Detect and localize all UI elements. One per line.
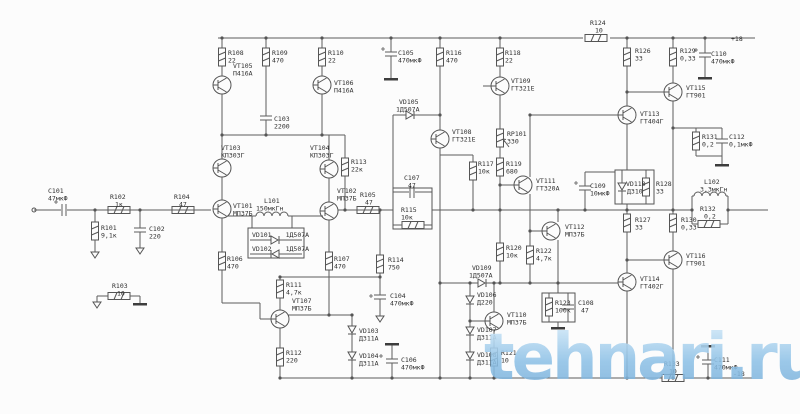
r130-resistor xyxy=(670,214,677,232)
r110-resistor xyxy=(319,48,326,66)
rp101-potentiometer xyxy=(497,129,504,147)
vt114-label: VT114ГТ402Г xyxy=(640,275,664,291)
c109-label: C10910мкФ xyxy=(590,182,610,198)
r115-label: R11510к xyxy=(401,206,417,222)
vt109-transistor xyxy=(491,77,509,95)
r118-resistor xyxy=(497,48,504,66)
r112-label: R112220 xyxy=(286,349,302,365)
vt110-label: VT110МП37Б xyxy=(507,311,527,327)
vt109-label: VT109ГТ321Е xyxy=(511,77,535,93)
vt103-transistor xyxy=(213,159,231,177)
ground-icon xyxy=(91,252,99,258)
vd106-diode xyxy=(466,296,474,304)
vd102-diode xyxy=(271,250,279,258)
r130-label: R1300,33 xyxy=(681,216,697,232)
vd108-diode xyxy=(466,352,474,360)
vt115-transistor xyxy=(664,83,682,101)
r129-label: R1290,33 xyxy=(680,47,696,63)
vt104-transistor xyxy=(320,160,338,178)
c105-label: C105470мкФ xyxy=(398,49,422,65)
vt113-transistor xyxy=(618,106,636,124)
schematic-page: C10147мкФ R1019,1к R1021к C102220 R10310… xyxy=(0,0,800,414)
vt114-transistor xyxy=(618,273,636,291)
r107-label: R107470 xyxy=(334,255,350,271)
r115-resistor xyxy=(402,222,424,229)
ground-icon xyxy=(93,302,101,308)
c107-label: C10747 xyxy=(404,174,420,190)
vt111-label: VT111ГТ320А xyxy=(536,177,560,193)
r113-label: R11322к xyxy=(351,158,367,174)
r120-label: R12010к xyxy=(506,244,522,260)
r110-label: R11022 xyxy=(328,49,344,65)
l101-label: L101150мкГн xyxy=(256,197,283,213)
supply-positive-label: +18 xyxy=(731,35,743,43)
l102-label: L1023,3мкГн xyxy=(700,178,727,194)
chassis-ground-icon xyxy=(133,303,147,306)
r111-label: R1114,7к xyxy=(286,281,302,297)
vt108-transistor xyxy=(431,130,449,148)
vt102-transistor xyxy=(320,202,338,220)
r117-resistor xyxy=(470,162,477,180)
vt113-label: VT113ГТ404Г xyxy=(640,110,664,126)
vt105-label: VT105П416А xyxy=(233,62,253,78)
rp101-label: RP101330 xyxy=(507,130,527,146)
r122-label: R1224,7к xyxy=(536,247,552,263)
r131-resistor xyxy=(693,132,700,150)
ground-icon xyxy=(136,248,144,254)
c112-label: C1120,1мкФ xyxy=(729,133,753,149)
symbols xyxy=(54,35,729,382)
vt101-label: VT101МП37Б xyxy=(233,202,253,218)
ground-icon xyxy=(376,316,384,322)
r101-resistor xyxy=(92,222,99,240)
r114-resistor xyxy=(377,255,384,273)
polarity-plus-icon xyxy=(379,354,383,358)
r108-resistor xyxy=(219,48,226,66)
vt111-transistor xyxy=(514,176,532,194)
vd105-label: VD1051Д507А xyxy=(396,98,420,114)
vd104-diode xyxy=(348,352,356,360)
vt108-label: VT108ГТ321Е xyxy=(452,128,476,144)
vd107-label: VD107Д311А xyxy=(477,326,497,342)
vd107-diode xyxy=(466,327,474,335)
r121-label: R12110 xyxy=(501,349,517,365)
chassis-ground-icon xyxy=(715,164,729,167)
r132-resistor xyxy=(698,221,720,228)
polarity-plus-icon xyxy=(369,294,373,298)
r123-label: R123100к xyxy=(555,299,571,315)
vt106-label: VT106П416А xyxy=(334,79,354,95)
c104-label: C104470мкФ xyxy=(390,292,414,308)
c110-label: C110470мкФ xyxy=(711,50,735,66)
wires xyxy=(32,38,768,378)
chassis-ground-icon xyxy=(551,327,565,330)
chassis-ground-icon xyxy=(701,345,715,348)
r113-resistor xyxy=(342,158,349,176)
vt106-transistor xyxy=(313,76,331,94)
vd109-label: VD1091Д507А xyxy=(469,264,493,280)
vt103-label: VT103КП303Г xyxy=(221,144,245,160)
r103-label: R10310 xyxy=(112,282,128,298)
vt101-transistor xyxy=(213,200,231,218)
r126-label: R12633 xyxy=(635,47,651,63)
vd101-label: VD1011Д507А xyxy=(252,231,309,239)
r106-label: R106470 xyxy=(227,255,243,271)
r111-resistor xyxy=(277,280,284,298)
vd109-diode xyxy=(478,279,486,287)
r123-resistor xyxy=(546,298,553,316)
r124-resistor xyxy=(585,35,607,42)
polarity-plus-icon xyxy=(696,355,700,359)
r117-label: R11710к xyxy=(478,160,494,176)
r132-label: R1320,2 xyxy=(700,205,716,221)
r129-resistor xyxy=(670,48,677,66)
r105-label: R10547 xyxy=(360,191,376,207)
vt104-label: VT104КП303Г xyxy=(310,144,334,160)
r128-label: R12833 xyxy=(656,180,672,196)
vd110-diode xyxy=(618,183,626,191)
vt102-label: VT102МП37Б xyxy=(337,187,357,203)
r131-label: R1310,2 xyxy=(702,133,718,149)
vt116-label: VT116ГТ901 xyxy=(686,252,706,268)
vd103-diode xyxy=(348,326,356,334)
labels: C10147мкФ R1019,1к R1021к C102220 R10310… xyxy=(48,19,753,378)
r120-resistor xyxy=(497,243,504,261)
vd103-label: VD103Д311А xyxy=(359,327,379,343)
vt107-label: VT107МП37Б xyxy=(292,297,312,313)
chassis-ground-icon xyxy=(385,343,399,346)
r109-resistor xyxy=(263,48,270,66)
r126-resistor xyxy=(624,48,631,66)
vd101-diode xyxy=(271,236,279,244)
schematic-canvas: C10147мкФ R1019,1к R1021к C102220 R10310… xyxy=(0,0,800,414)
vt105-transistor xyxy=(213,76,231,94)
c101-label: C10147мкФ xyxy=(48,187,68,203)
r116-resistor xyxy=(437,48,444,66)
polarity-plus-icon xyxy=(381,47,385,51)
r119-label: R119680 xyxy=(506,160,522,176)
chassis-ground-icon xyxy=(698,77,712,80)
r127-label: R12733 xyxy=(635,216,651,232)
vd102-label: VD1021Д507А xyxy=(252,245,309,253)
c108-label: C10847 xyxy=(578,299,594,315)
r101-label: R1019,1к xyxy=(101,224,117,240)
r116-label: R116470 xyxy=(446,49,462,65)
vt107-transistor xyxy=(271,310,289,328)
vd108-label: VD108Д311А xyxy=(477,351,497,367)
vt115-label: VT115ГТ901 xyxy=(686,84,706,100)
r112-resistor xyxy=(277,348,284,366)
r118-label: R11822 xyxy=(505,49,521,65)
r124-label: R12410 xyxy=(590,19,606,35)
r127-resistor xyxy=(624,214,631,232)
r114-label: R114750 xyxy=(388,256,404,272)
r109-label: R109470 xyxy=(272,49,288,65)
r119-resistor xyxy=(497,158,504,176)
c102-label: C102220 xyxy=(149,225,165,241)
r107-resistor xyxy=(326,252,333,270)
c106-label: C106470мкФ xyxy=(401,356,425,372)
r106-resistor xyxy=(219,252,226,270)
chassis-ground-icon xyxy=(384,78,398,81)
c103-label: C1032200 xyxy=(274,115,290,131)
supply-negative-label: -18 xyxy=(733,370,745,378)
vt116-transistor xyxy=(664,251,682,269)
r122-resistor xyxy=(527,246,534,264)
vt112-label: VT112МП37Б xyxy=(565,223,585,239)
r133-label: R13310 xyxy=(664,360,680,376)
vt112-transistor xyxy=(542,222,560,240)
polarity-plus-icon xyxy=(574,181,578,185)
vd104-label: VD104Д311А xyxy=(359,352,379,368)
